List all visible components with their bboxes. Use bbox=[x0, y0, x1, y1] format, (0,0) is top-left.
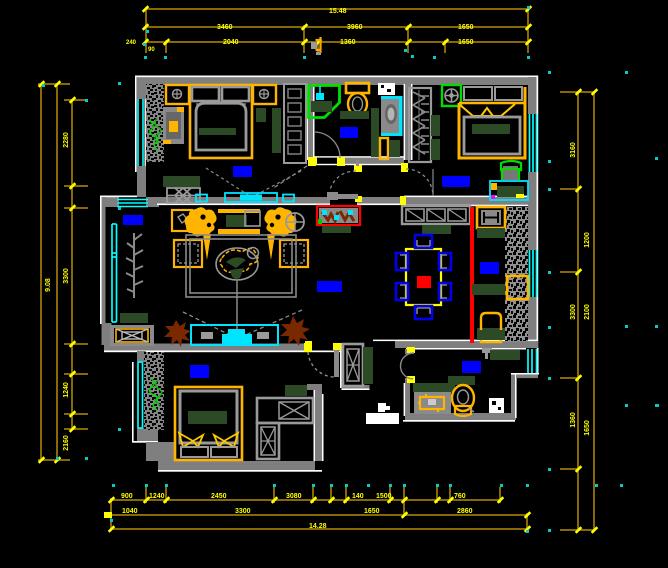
svg-text:3300: 3300 bbox=[235, 508, 251, 515]
svg-text:140: 140 bbox=[352, 493, 364, 500]
svg-text:2280: 2280 bbox=[63, 132, 70, 148]
svg-text:15.48: 15.48 bbox=[329, 8, 347, 15]
svg-text:3460: 3460 bbox=[217, 24, 233, 31]
svg-text:3300: 3300 bbox=[63, 268, 70, 284]
svg-text:760: 760 bbox=[454, 493, 466, 500]
svg-text:1500: 1500 bbox=[376, 493, 392, 500]
svg-text:1240: 1240 bbox=[63, 382, 70, 398]
svg-text:1360: 1360 bbox=[570, 412, 577, 428]
svg-text:3080: 3080 bbox=[286, 493, 302, 500]
svg-text:2100: 2100 bbox=[584, 304, 591, 320]
svg-text:1650: 1650 bbox=[364, 508, 380, 515]
svg-text:3960: 3960 bbox=[347, 24, 363, 31]
svg-text:1360: 1360 bbox=[340, 39, 356, 46]
svg-text:14.28: 14.28 bbox=[309, 523, 327, 530]
svg-text:3160: 3160 bbox=[570, 142, 577, 158]
svg-text:900: 900 bbox=[121, 493, 133, 500]
svg-text:90: 90 bbox=[148, 47, 155, 53]
svg-text:1650: 1650 bbox=[458, 24, 474, 31]
svg-text:1650: 1650 bbox=[458, 39, 474, 46]
svg-text:1200: 1200 bbox=[584, 232, 591, 248]
svg-text:1650: 1650 bbox=[584, 420, 591, 436]
svg-text:2860: 2860 bbox=[457, 508, 473, 515]
svg-text:2160: 2160 bbox=[63, 435, 70, 451]
svg-text:1040: 1040 bbox=[122, 508, 138, 515]
svg-text:240: 240 bbox=[126, 40, 137, 46]
svg-text:1240: 1240 bbox=[149, 493, 165, 500]
svg-text:2040: 2040 bbox=[223, 39, 239, 46]
svg-text:2450: 2450 bbox=[211, 493, 227, 500]
svg-text:3300: 3300 bbox=[570, 304, 577, 320]
svg-text:9.08: 9.08 bbox=[45, 278, 52, 292]
